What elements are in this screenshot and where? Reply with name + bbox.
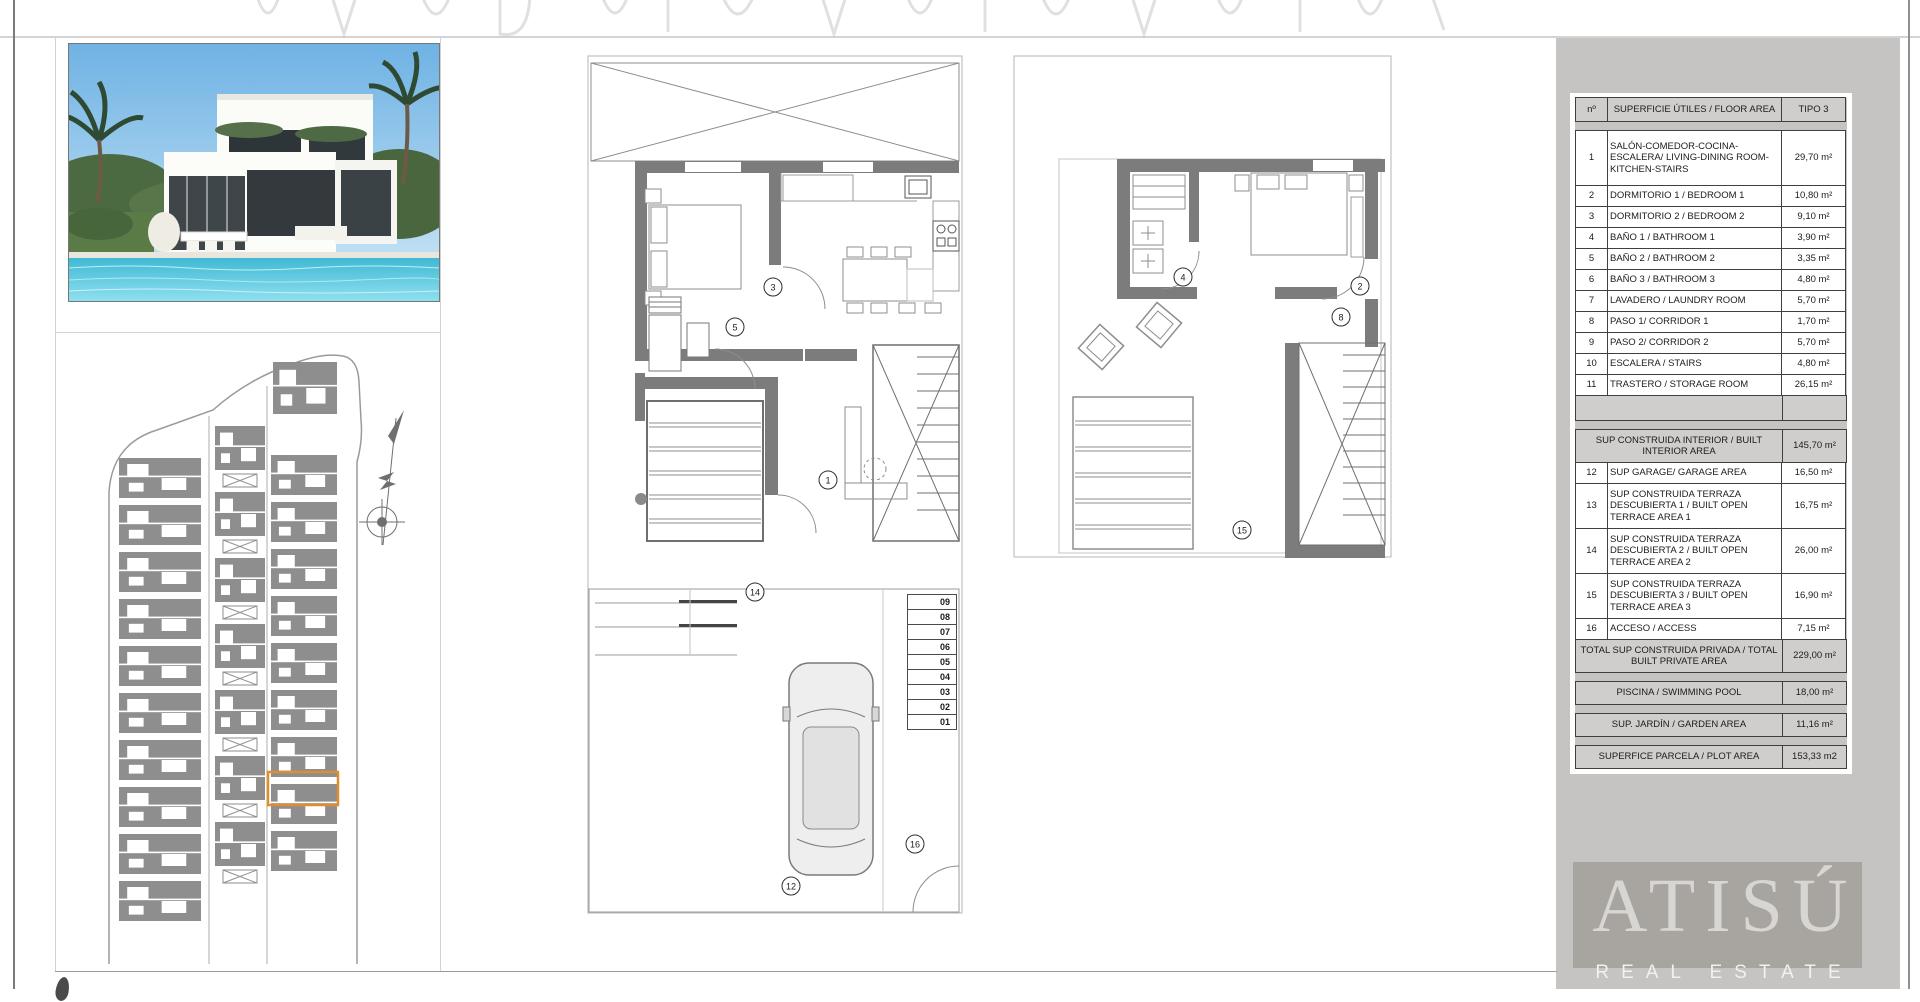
room-label-5: 5 <box>726 318 745 337</box>
footer-leaf-mark <box>54 976 71 1002</box>
row-value: 26,00 m² <box>1781 528 1846 574</box>
villa-block <box>271 596 337 636</box>
row-label: PASO 1/ CORRIDOR 1 <box>1607 311 1782 333</box>
villa-block <box>273 362 337 414</box>
row-label: SUP CONSTRUIDA TERRAZA DESCUBIERTA 1 / B… <box>1607 483 1782 529</box>
terrace-deck <box>1073 397 1193 549</box>
row-number: 14 <box>1575 528 1608 574</box>
row-label: SUP CONSTRUIDA TERRAZA DESCUBIERTA 3 / B… <box>1607 573 1782 619</box>
row-number: 3 <box>1575 206 1608 228</box>
row-label: PISCINA / SWIMMING POOL <box>1575 681 1783 705</box>
row-label: SALÓN-COMEDOR-COCINA-ESCALERA/ LIVING-DI… <box>1607 130 1782 186</box>
left-column-divider <box>55 332 440 333</box>
villa-block <box>215 426 265 470</box>
row-label: BAÑO 1 / BATHROOM 1 <box>1607 227 1782 249</box>
stair-tread-06: 06 <box>907 639 957 655</box>
villa-block <box>271 643 337 683</box>
row-number: 7 <box>1575 290 1608 312</box>
storage-room <box>635 401 816 541</box>
page-left-border <box>13 0 15 989</box>
row-value: 16,75 m² <box>1781 483 1846 529</box>
table-row: TOTAL SUP CONSTRUIDA PRIVADA / TOTAL BUI… <box>1575 639 1847 673</box>
stair-tread-02: 02 <box>907 699 957 715</box>
stair-tread-07: 07 <box>907 624 957 640</box>
row-number: 5 <box>1575 248 1608 270</box>
row-label: LAVADERO / LAUNDRY ROOM <box>1607 290 1782 312</box>
row-number: 9 <box>1575 332 1608 354</box>
table-row: 15SUP CONSTRUIDA TERRAZA DESCUBIERTA 3 /… <box>1575 573 1847 619</box>
page-right-border <box>1908 0 1910 989</box>
villa-block <box>119 740 201 780</box>
row-number: 11 <box>1575 374 1608 396</box>
room-label-2: 2 <box>1351 277 1370 296</box>
site-x-box <box>223 474 257 487</box>
master-bedroom <box>1235 173 1364 299</box>
table-blank-row <box>1575 395 1847 421</box>
villa-block <box>215 690 265 734</box>
room-label-15: 15 <box>1233 521 1252 540</box>
row-value: 16,50 m² <box>1781 462 1846 484</box>
row-label: DORMITORIO 2 / BEDROOM 2 <box>1607 206 1782 228</box>
upper-floor-plan: 42815 <box>1013 55 1393 558</box>
table-row: 16ACCESO / ACCESS7,15 m² <box>1575 618 1847 640</box>
row-label: SUP. JARDÍN / GARDEN AREA <box>1575 713 1783 737</box>
table-row: 14SUP CONSTRUIDA TERRAZA DESCUBIERTA 2 /… <box>1575 528 1847 574</box>
row-value: 10,80 m² <box>1781 185 1846 207</box>
row-value: 153,33 m2 <box>1782 745 1847 769</box>
row-label: ACCESO / ACCESS <box>1607 618 1782 640</box>
row-label: SUP CONSTRUIDA INTERIOR / BUILT INTERIOR… <box>1575 429 1783 463</box>
row-number: 2 <box>1575 185 1608 207</box>
room-label-14: 14 <box>746 583 765 602</box>
pool <box>69 258 439 301</box>
row-value: 9,10 m² <box>1781 206 1846 228</box>
bedroom <box>645 189 825 309</box>
site-x-box <box>223 540 257 553</box>
footer-divider <box>55 971 1557 972</box>
row-value: 1,70 m² <box>1781 311 1846 333</box>
villa-block <box>215 624 265 668</box>
table-row: 8PASO 1/ CORRIDOR 11,70 m² <box>1575 311 1847 333</box>
table-row: PISCINA / SWIMMING POOL18,00 m² <box>1575 681 1847 705</box>
villa-block <box>215 492 265 536</box>
row-value: 5,70 m² <box>1781 290 1846 312</box>
villa-block <box>271 831 337 871</box>
table-row: 7LAVADERO / LAUNDRY ROOM5,70 m² <box>1575 290 1847 312</box>
villa-block <box>271 549 337 589</box>
row-number: 10 <box>1575 353 1608 375</box>
brochure-page: { "table": { "title_row": { "num": "nº",… <box>0 0 1920 989</box>
villa-block <box>271 455 337 495</box>
row-label: SUP CONSTRUIDA TERRAZA DESCUBIERTA 2 / B… <box>1607 528 1782 574</box>
table-body: 1SALÓN-COMEDOR-COCINA-ESCALERA/ LIVING-D… <box>1575 130 1847 769</box>
row-value: 26,15 m² <box>1781 374 1846 396</box>
row-label: BAÑO 3 / BATHROOM 3 <box>1607 269 1782 291</box>
villa-block <box>119 458 201 498</box>
watermark-decoration <box>0 0 1920 38</box>
stair-tread-05: 05 <box>907 654 957 670</box>
site-masterplan <box>95 340 435 965</box>
brand-logo: ATISÚ <box>1560 868 1890 944</box>
table-row: 4BAÑO 1 / BATHROOM 13,90 m² <box>1575 227 1847 249</box>
row-value: 5,70 m² <box>1781 332 1846 354</box>
ground-floor-plan: 351141216 090807060504030201 <box>587 55 963 914</box>
row-value: 145,70 m² <box>1782 429 1847 463</box>
villa-block <box>271 690 337 730</box>
villa-block <box>215 822 265 866</box>
north-arrow-icon <box>359 410 405 545</box>
stair-tread-09: 09 <box>907 594 957 610</box>
stair-tread-08: 08 <box>907 609 957 625</box>
row-label: PASO 2/ CORRIDOR 2 <box>1607 332 1782 354</box>
site-x-box <box>223 738 257 751</box>
table-row: 10ESCALERA / STAIRS4,80 m² <box>1575 353 1847 375</box>
stair-tread-01: 01 <box>907 714 957 730</box>
room-label-1: 1 <box>819 471 838 490</box>
row-number: 15 <box>1575 573 1608 619</box>
row-number: 12 <box>1575 462 1608 484</box>
left-column-right-border <box>440 38 441 972</box>
row-value: 18,00 m² <box>1782 681 1847 705</box>
table-row: 13SUP CONSTRUIDA TERRAZA DESCUBIERTA 1 /… <box>1575 483 1847 529</box>
table-header-row: nº SUPERFICIE ÚTILES / FLOOR AREA TIPO 3 <box>1575 97 1847 122</box>
row-label: ESCALERA / STAIRS <box>1607 353 1782 375</box>
table-header-value: TIPO 3 <box>1781 97 1846 122</box>
brand-tagline: REAL ESTATE <box>1586 962 1862 984</box>
table-row: SUP. JARDÍN / GARDEN AREA11,16 m² <box>1575 713 1847 737</box>
table-row: 1SALÓN-COMEDOR-COCINA-ESCALERA/ LIVING-D… <box>1575 130 1847 186</box>
row-label <box>1575 395 1783 421</box>
site-x-box <box>223 870 257 883</box>
row-label: SUP GARAGE/ GARAGE AREA <box>1607 462 1782 484</box>
car-icon <box>783 663 879 875</box>
row-value: 3,35 m² <box>1781 248 1846 270</box>
room-label-3: 3 <box>764 278 783 297</box>
site-villa-blocks <box>119 362 337 921</box>
table-row: 11TRASTERO / STORAGE ROOM26,15 m² <box>1575 374 1847 396</box>
villa-photo-art <box>69 44 439 301</box>
driveway <box>589 589 959 912</box>
villa-block <box>215 558 265 602</box>
dining-table <box>843 247 941 313</box>
room-label-4: 4 <box>1174 268 1193 287</box>
row-label: DORMITORIO 1 / BEDROOM 1 <box>1607 185 1782 207</box>
row-number: 16 <box>1575 618 1608 640</box>
site-x-box <box>223 606 257 619</box>
table-row: 5BAÑO 2 / BATHROOM 23,35 m² <box>1575 248 1847 270</box>
floor-area-table: nº SUPERFICIE ÚTILES / FLOOR AREA TIPO 3… <box>1575 98 1847 769</box>
row-number: 8 <box>1575 311 1608 333</box>
laundry <box>649 297 755 389</box>
row-value: 16,90 m² <box>1781 573 1846 619</box>
room-label-8: 8 <box>1332 308 1351 327</box>
table-row: 6BAÑO 3 / BATHROOM 34,80 m² <box>1575 269 1847 291</box>
row-value: 4,80 m² <box>1781 353 1846 375</box>
villa-block <box>119 552 201 592</box>
table-row: 12SUP GARAGE/ GARAGE AREA16,50 m² <box>1575 462 1847 484</box>
row-value <box>1782 395 1847 421</box>
table-row: SUP CONSTRUIDA INTERIOR / BUILT INTERIOR… <box>1575 429 1847 463</box>
row-value: 4,80 m² <box>1781 269 1846 291</box>
room-label-16: 16 <box>906 835 925 854</box>
villa-block <box>271 502 337 542</box>
villa-block <box>119 599 201 639</box>
left-column-border <box>55 38 56 972</box>
row-label: TRASTERO / STORAGE ROOM <box>1607 374 1782 396</box>
table-row: 9PASO 2/ CORRIDOR 25,70 m² <box>1575 332 1847 354</box>
table-row: 3DORMITORIO 2 / BEDROOM 29,10 m² <box>1575 206 1847 228</box>
table-row: SUPERFICE PARCELA / PLOT AREA153,33 m2 <box>1575 745 1847 769</box>
villa-block <box>119 787 201 827</box>
villa-block <box>119 834 201 874</box>
site-x-box <box>223 804 257 817</box>
row-number: 4 <box>1575 227 1608 249</box>
villa-block <box>119 505 201 545</box>
interior-stairs <box>873 345 959 541</box>
row-value: 7,15 m² <box>1781 618 1846 640</box>
row-number: 13 <box>1575 483 1608 529</box>
row-label: SUPERFICE PARCELA / PLOT AREA <box>1575 745 1783 769</box>
row-value: 3,90 m² <box>1781 227 1846 249</box>
row-label: BAÑO 2 / BATHROOM 2 <box>1607 248 1782 270</box>
villa-block <box>119 881 201 921</box>
row-number: 1 <box>1575 130 1608 186</box>
table-header-label: SUPERFICIE ÚTILES / FLOOR AREA <box>1607 97 1782 122</box>
stairwell <box>1285 343 1385 558</box>
row-label: TOTAL SUP CONSTRUIDA PRIVADA / TOTAL BUI… <box>1575 639 1783 673</box>
stair-tread-03: 03 <box>907 684 957 700</box>
table-row: 2DORMITORIO 1 / BEDROOM 110,80 m² <box>1575 185 1847 207</box>
row-value: 11,16 m² <box>1782 713 1847 737</box>
villa-block <box>215 756 265 800</box>
row-value: 29,70 m² <box>1781 130 1846 186</box>
table-header-num: nº <box>1575 97 1608 122</box>
site-x-box <box>223 672 257 685</box>
row-value: 229,00 m² <box>1782 639 1847 673</box>
room-label-12: 12 <box>782 877 801 896</box>
row-number: 6 <box>1575 269 1608 291</box>
stair-tread-04: 04 <box>907 669 957 685</box>
villa-block <box>119 693 201 733</box>
villa-photo <box>68 43 440 302</box>
pergola-area <box>591 63 959 161</box>
lounge-chairs <box>1078 302 1181 369</box>
villa-block <box>119 646 201 686</box>
